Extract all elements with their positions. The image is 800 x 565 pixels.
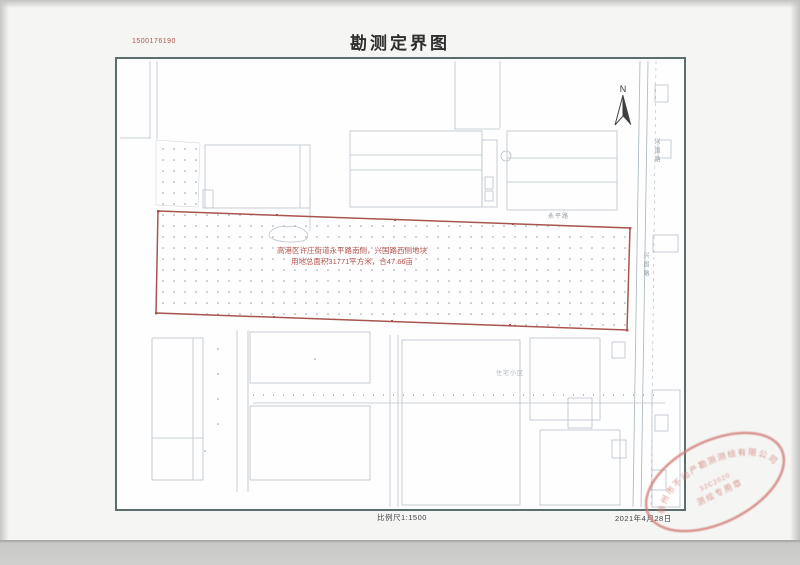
scan-edge-left <box>0 0 9 565</box>
document-number: 1500176190 <box>132 38 176 45</box>
parcels-south <box>152 330 665 507</box>
page-title: 勘测定界图 <box>300 29 500 54</box>
road-label-xingguo-lower: 兴国路 <box>641 252 650 279</box>
survey-map: N <box>117 59 684 509</box>
red-oval-seal: 泰州市不动产勘测测绘有限公司 32C2020 测绘专用章 <box>612 418 800 558</box>
scale-label: 比例尺1:1500 <box>377 512 427 523</box>
residential-area-label: 住宅小区 <box>496 368 524 377</box>
parcel-annotation-line1: 高港区许庄街道永平路南侧，兴国路西侧地块 <box>200 246 504 257</box>
svg-text:泰州市不动产勘测测绘有限公司: 泰州市不动产勘测测绘有限公司 <box>644 428 783 522</box>
road-label-xingguo-upper: 兴国路 <box>652 138 661 165</box>
road-label-yongping: 永平路 <box>548 211 569 220</box>
north-arrow-label: N <box>620 84 627 94</box>
buildings-north <box>120 61 617 210</box>
map-frame: N <box>115 57 686 511</box>
scan-edge-top <box>0 0 800 8</box>
scanned-survey-document: { "page": { "doc_number": "1500176190", … <box>0 0 800 565</box>
north-arrow: N <box>615 84 631 125</box>
seal-rim-text: 泰州市不动产勘测测绘有限公司 <box>644 428 783 522</box>
parcel-boundary <box>155 210 631 331</box>
parcel-annotation-line2: 用地总面积31771平方米，合47.66亩 <box>200 257 504 268</box>
parcel-annotation: 高港区许庄街道永平路南侧，兴国路西侧地块 用地总面积31771平方米，合47.6… <box>200 246 504 267</box>
